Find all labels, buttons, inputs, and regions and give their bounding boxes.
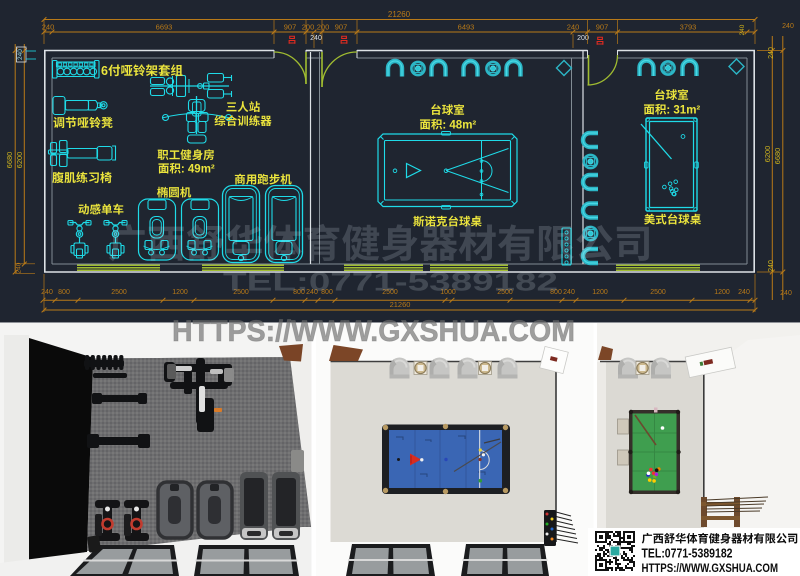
svg-text:240: 240	[738, 289, 750, 296]
svg-text:21260: 21260	[388, 10, 411, 19]
svg-text:2500: 2500	[650, 289, 666, 296]
svg-text:907: 907	[335, 23, 348, 32]
svg-text:6200: 6200	[763, 146, 772, 163]
svg-text:6493: 6493	[458, 23, 475, 32]
svg-text:TEL:0771-5389182: TEL:0771-5389182	[642, 546, 733, 561]
svg-text:907: 907	[284, 23, 297, 32]
svg-text:200: 200	[317, 23, 330, 32]
svg-text:HTTPS://WWW.GXSHUA.COM: HTTPS://WWW.GXSHUA.COM	[642, 561, 779, 575]
svg-text:240: 240	[768, 260, 775, 272]
svg-text:240: 240	[310, 35, 322, 42]
svg-text:240: 240	[782, 23, 794, 30]
svg-text:240: 240	[563, 289, 575, 296]
svg-text:240: 240	[739, 24, 746, 35]
svg-text:6680: 6680	[5, 152, 14, 169]
svg-text:21260: 21260	[390, 300, 411, 309]
svg-text:240: 240	[780, 290, 792, 297]
svg-text:1200: 1200	[172, 289, 188, 296]
svg-text:240: 240	[41, 289, 53, 296]
svg-text:240: 240	[768, 47, 775, 59]
svg-text:HTTPS://WWW.GXSHUA.COM: HTTPS://WWW.GXSHUA.COM	[172, 315, 575, 348]
svg-text:200: 200	[302, 23, 315, 32]
svg-text:: 48m²: : 48m²	[442, 120, 476, 132]
svg-text:: 31m²: : 31m²	[666, 105, 700, 117]
svg-text:6: 6	[101, 64, 108, 78]
svg-text:800: 800	[58, 289, 70, 296]
svg-text:240: 240	[42, 23, 55, 32]
svg-text:6200: 6200	[15, 152, 24, 169]
svg-text:907: 907	[596, 23, 609, 32]
svg-text:1200: 1200	[714, 289, 730, 296]
svg-text:TEL:0771-5389182: TEL:0771-5389182	[223, 267, 558, 297]
svg-text:: 49m²: : 49m²	[181, 164, 215, 176]
svg-text:6680: 6680	[773, 148, 782, 165]
svg-text:240: 240	[17, 49, 24, 60]
svg-text:240: 240	[567, 23, 580, 32]
svg-text:3793: 3793	[680, 23, 697, 32]
svg-text:1200: 1200	[592, 289, 608, 296]
svg-text:6693: 6693	[156, 23, 173, 32]
svg-text:2500: 2500	[111, 289, 127, 296]
